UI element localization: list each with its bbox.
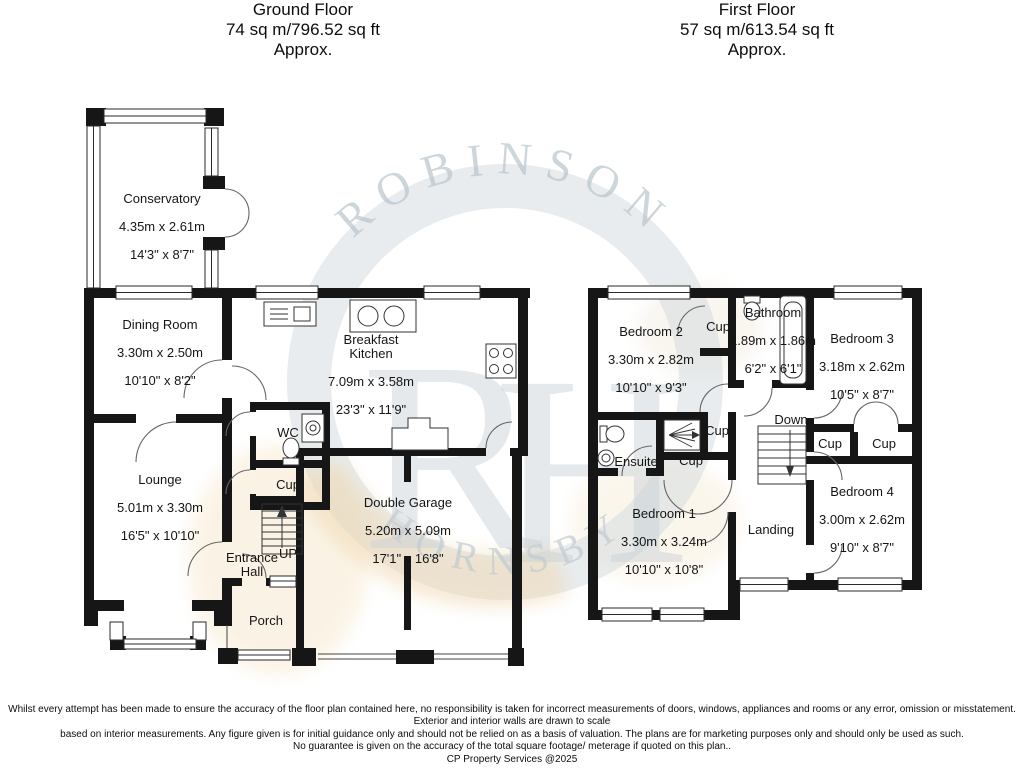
room-label-bedroom-3: Bedroom 3 3.18m x 2.62m 10'5" x 8'7" [819,318,905,416]
room-label-cupboard-bedroom3-a: Cup [818,423,842,465]
room-name: Breakfast Kitchen [328,333,414,361]
room-imperial: 16'5" x 10'10" [117,529,203,543]
room-name: Bathroom [730,306,816,320]
stairs-up-label: UP [279,533,297,575]
room-name: Conservatory [119,192,205,206]
room-metric: 7.09m x 3.58m [328,375,414,389]
room-name: UP [279,547,297,561]
room-name: Cup [276,478,300,492]
room-metric: 1.89m x 1.86m [730,334,816,348]
room-name: Down [774,413,807,427]
room-metric: 4.35m x 2.61m [119,220,205,234]
disclaimer-line-2: based on interior measurements. Any figu… [0,729,1024,742]
room-name: Entrance Hall [226,551,278,579]
disclaimer-line-1: Whilst every attempt has been made to en… [0,704,1024,729]
room-metric: 3.18m x 2.62m [819,360,905,374]
first-floor-title: First Floor [557,0,957,20]
room-label-cupboard-shower: Cup [705,410,729,452]
room-name: Cup [679,454,703,468]
room-name: Porch [249,614,283,628]
room-label-porch: Porch [249,600,283,642]
ground-floor-header: Ground Floor 74 sq m/796.52 sq ft Approx… [88,0,518,60]
ground-floor-area: 74 sq m/796.52 sq ft [88,20,518,40]
room-label-cupboard-hall: Cup [276,464,300,506]
room-label-dining-room: Dining Room 3.30m x 2.50m 10'10" x 8'2" [117,304,203,402]
room-name: Bedroom 4 [819,485,905,499]
room-label-cupboard-middle: Cup [679,440,703,482]
room-label-ensuite: Ensuite [614,441,657,483]
stairs-down-label: Down [774,399,807,441]
room-name: WC [277,426,299,440]
room-label-landing: Landing [748,509,794,551]
room-metric: 5.20m x 5.09m [364,524,452,538]
room-label-conservatory: Conservatory 4.35m x 2.61m 14'3" x 8'7" [119,178,205,276]
room-label-breakfast-kitchen: Breakfast Kitchen 7.09m x 3.58m 23'3" x … [328,319,414,431]
room-imperial: 10'10" x 10'8" [621,563,707,577]
room-imperial: 23'3" x 11'9" [328,403,414,417]
disclaimer-line-4: CP Property Services @2025 [0,754,1024,767]
room-metric: 5.01m x 3.30m [117,501,203,515]
room-label-bedroom-4: Bedroom 4 3.00m x 2.62m 9'10" x 8'7" [819,471,905,569]
room-name: Bedroom 3 [819,332,905,346]
room-name: Bedroom 1 [621,507,707,521]
floorplan-page: ROBINSON HORNSBY R H [0,0,1024,768]
room-label-entrance-hall: Entrance Hall [226,537,278,593]
room-label-bedroom-1: Bedroom 1 3.30m x 3.24m 10'10" x 10'8" [621,493,707,591]
room-label-lounge: Lounge 5.01m x 3.30m 16'5" x 10'10" [117,459,203,557]
room-imperial: 14'3" x 8'7" [119,248,205,262]
ground-floor-approx: Approx. [88,40,518,60]
room-name: Cup [818,437,842,451]
room-label-double-garage: Double Garage 5.20m x 5.09m 17'1" x 16'8… [364,482,452,580]
room-imperial: 10'10" x 8'2" [117,374,203,388]
room-name: Cup [706,320,730,334]
room-name: Lounge [117,473,203,487]
disclaimer-footer: Whilst every attempt has been made to en… [0,704,1024,767]
room-imperial: 10'5" x 8'7" [819,388,905,402]
room-name: Cup [872,437,896,451]
room-metric: 3.30m x 3.24m [621,535,707,549]
room-imperial: 6'2" x 6'1" [730,362,816,376]
room-label-wc: WC [277,412,299,454]
room-name: Landing [748,523,794,537]
first-floor-approx: Approx. [557,40,957,60]
first-floor-area: 57 sq m/613.54 sq ft [557,20,957,40]
room-imperial: 17'1" x 16'8" [364,552,452,566]
room-name: Cup [705,424,729,438]
room-metric: 3.30m x 2.82m [608,353,694,367]
room-label-bathroom: Bathroom 1.89m x 1.86m 6'2" x 6'1" [730,292,816,390]
room-imperial: 9'10" x 8'7" [819,541,905,555]
room-label-bedroom-2: Bedroom 2 3.30m x 2.82m 10'10" x 9'3" [608,311,694,409]
room-metric: 3.00m x 2.62m [819,513,905,527]
first-floor-header: First Floor 57 sq m/613.54 sq ft Approx. [557,0,957,60]
ground-floor-title: Ground Floor [88,0,518,20]
room-label-cupboard-bedroom2: Cup [706,306,730,348]
disclaimer-line-3: No guarantee is given on the accuracy of… [0,741,1024,754]
room-metric: 3.30m x 2.50m [117,346,203,360]
room-name: Bedroom 2 [608,325,694,339]
room-label-cupboard-bedroom3-b: Cup [872,423,896,465]
room-imperial: 10'10" x 9'3" [608,381,694,395]
room-name: Ensuite [614,455,657,469]
room-name: Double Garage [364,496,452,510]
room-name: Dining Room [117,318,203,332]
